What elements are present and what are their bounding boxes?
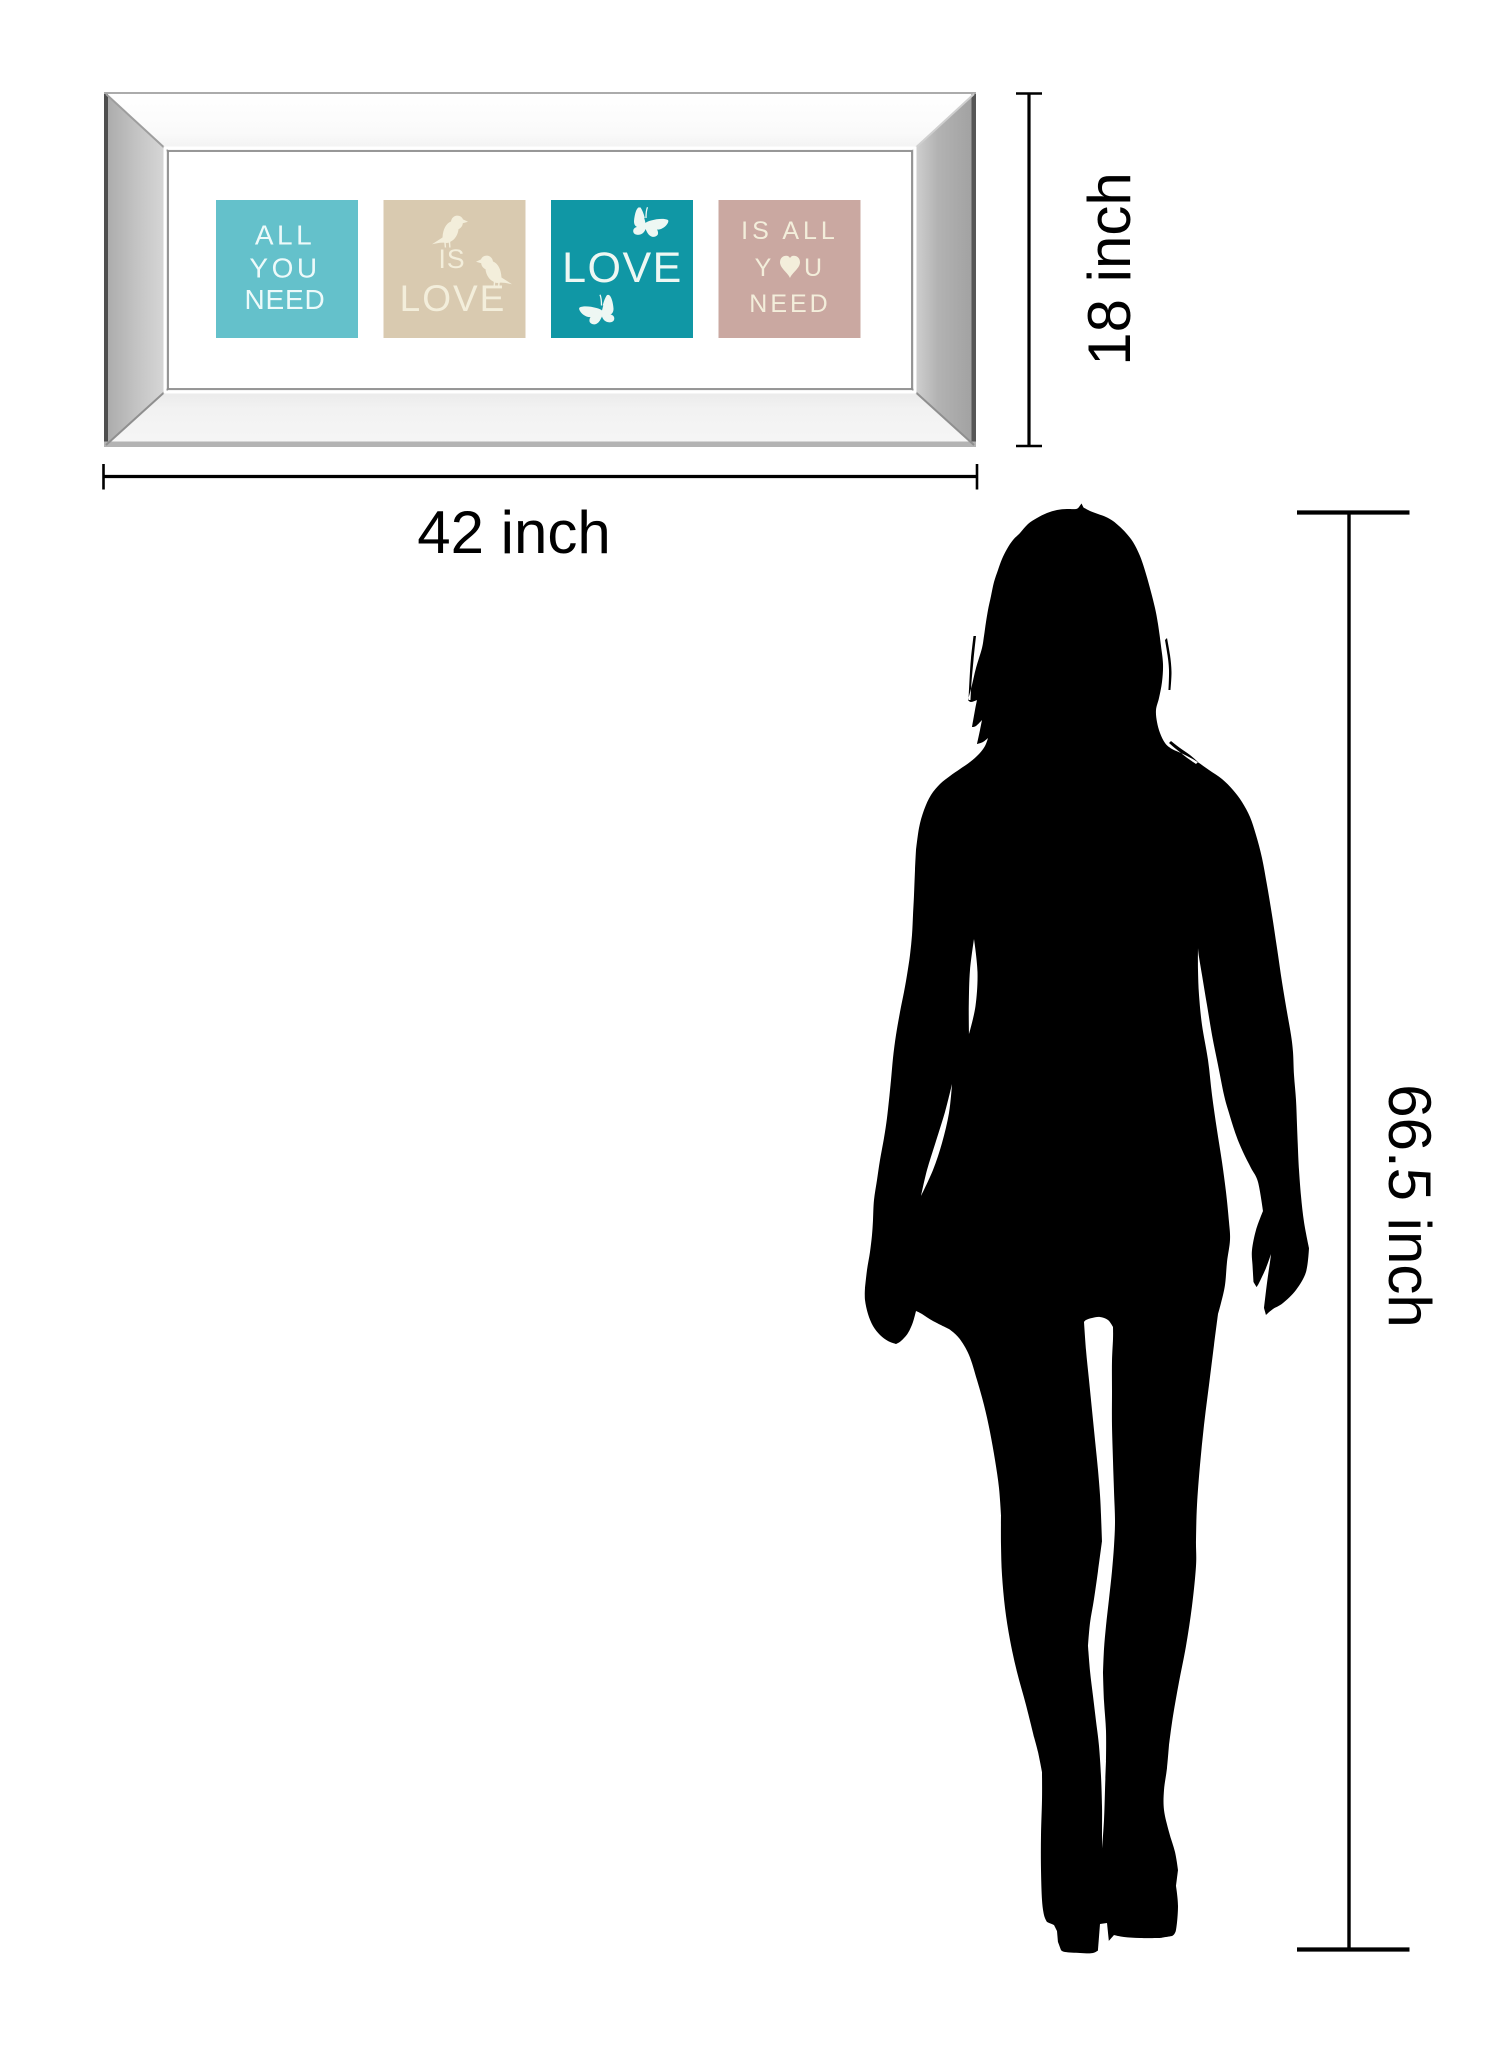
svg-text:66.5 inch: 66.5 inch bbox=[1376, 1084, 1443, 1328]
svg-text:U: U bbox=[804, 254, 826, 282]
svg-text:NEED: NEED bbox=[245, 284, 326, 315]
svg-text:Y: Y bbox=[755, 254, 776, 282]
svg-text:IS: IS bbox=[438, 244, 465, 274]
svg-text:42 inch: 42 inch bbox=[417, 499, 610, 566]
svg-text:LOVE: LOVE bbox=[562, 244, 683, 292]
svg-text:IS ALL: IS ALL bbox=[741, 217, 839, 245]
svg-text:YOU: YOU bbox=[249, 253, 320, 284]
svg-text:NEED: NEED bbox=[749, 290, 830, 318]
svg-text:18 inch: 18 inch bbox=[1076, 172, 1143, 365]
svg-text:ALL: ALL bbox=[255, 220, 315, 251]
svg-text:LOVE: LOVE bbox=[400, 278, 507, 319]
